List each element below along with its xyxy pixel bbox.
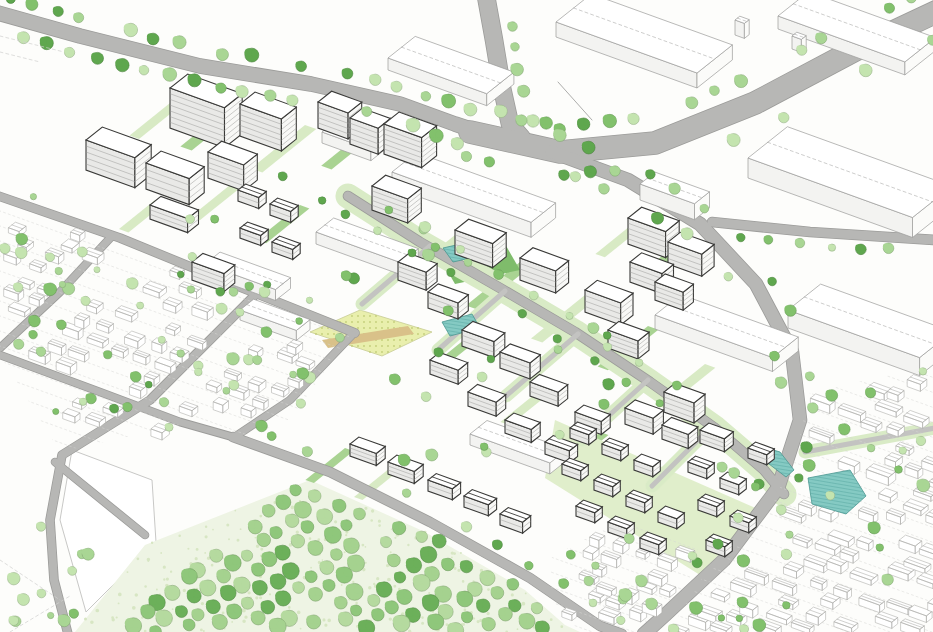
tree-icon [9,616,19,626]
tree-icon [0,244,10,254]
tree-icon [367,594,379,606]
tree-icon [56,320,66,330]
tree-icon [296,61,307,72]
tree-icon [323,579,335,591]
tree-icon [362,107,372,117]
tree-icon [155,610,172,626]
tree-icon [199,580,216,596]
tree-icon [709,86,719,96]
tree-icon [341,520,352,531]
tree-icon [220,585,236,600]
tree-icon [396,589,412,604]
tree-icon [865,388,875,398]
tree-icon [136,302,143,309]
tree-icon [334,596,347,609]
tree-icon [590,357,599,365]
tree-icon [290,371,297,378]
tree-icon [291,535,305,548]
tree-icon [308,490,321,503]
tree-icon [603,332,611,340]
tree-icon [796,45,806,55]
tree-icon [275,591,291,606]
tree-icon [81,296,90,305]
tree-icon [526,115,539,127]
tree-icon [226,604,242,619]
tree-icon [306,615,321,629]
tree-icon [398,454,410,466]
tree-icon [64,47,75,57]
tree-icon [427,614,444,630]
tree-icon [37,589,46,598]
tree-icon [140,605,155,619]
tree-icon [635,575,647,587]
tree-icon [507,578,519,590]
tree-icon [689,602,702,615]
tree-icon [461,151,472,161]
tree-icon [332,499,346,512]
tree-icon [610,166,621,176]
tree-icon [123,403,132,412]
tree-icon [451,138,464,150]
tree-icon [13,339,23,349]
tree-icon [270,527,283,539]
tree-icon [672,381,681,390]
tree-icon [223,387,230,394]
tree-icon [79,398,86,405]
tree-icon [15,247,27,258]
tree-icon [192,609,205,621]
tree-icon [393,615,410,632]
tree-icon [801,442,813,453]
tree-icon [77,247,87,257]
tree-icon [786,531,794,538]
tree-icon [895,466,903,474]
tree-icon [484,157,495,167]
tree-icon [216,288,225,297]
tree-icon [181,569,197,585]
tree-icon [47,612,53,618]
tree-icon [492,540,502,550]
tree-icon [855,244,866,255]
tree-icon [389,374,400,385]
tree-icon [316,509,332,525]
tree-icon [17,594,29,606]
tree-icon [173,36,187,49]
tree-icon [535,621,549,632]
tree-icon [296,399,306,408]
tree-icon [724,272,733,281]
tree-icon [635,359,643,367]
tree-icon [353,508,365,520]
tree-icon [216,83,227,93]
tree-icon [883,243,894,254]
tree-icon [828,244,835,251]
tree-icon [261,552,276,567]
tree-icon [235,86,248,98]
tree-icon [507,22,517,32]
tree-icon [346,583,364,600]
tree-icon [603,343,612,351]
tree-icon [529,291,538,300]
tree-icon [739,625,748,632]
tree-icon [224,555,241,572]
tree-icon [16,233,28,244]
tree-icon [306,297,313,303]
tree-icon [570,172,580,182]
tree-icon [603,379,615,390]
tree-icon [868,522,881,534]
tree-icon [803,460,815,472]
tree-icon [43,283,56,296]
tree-icon [229,380,239,390]
tree-icon [838,424,850,435]
tree-icon [498,607,512,621]
tree-icon [737,555,750,567]
tree-icon [555,430,564,439]
tree-icon [292,582,304,594]
tree-icon [775,377,787,388]
tree-icon [115,58,129,71]
tree-icon [212,614,228,629]
tree-icon [753,619,766,632]
tree-icon [531,603,543,614]
tree-icon [338,612,353,626]
tree-icon [645,170,655,179]
tree-icon [668,624,679,632]
tree-icon [717,462,727,472]
tree-icon [305,571,317,583]
tree-icon [540,117,553,129]
tree-icon [751,483,759,491]
tree-icon [558,170,569,180]
tree-icon [226,353,239,365]
tree-icon [259,287,270,298]
tree-icon [376,582,392,597]
tree-icon [524,562,533,570]
tree-icon [387,554,400,567]
tree-icon [566,312,573,319]
tree-icon [461,612,473,623]
tree-icon [688,552,697,560]
tree-icon [343,538,359,554]
tree-icon [159,398,168,407]
tree-icon [805,372,814,381]
tree-icon [394,572,406,583]
tree-icon [919,368,927,375]
tree-icon [30,194,36,200]
tree-icon [681,228,693,240]
tree-icon [296,318,303,325]
tree-icon [588,323,599,334]
tree-icon [94,267,100,273]
tree-icon [278,172,287,181]
tree-icon [669,183,681,194]
tree-icon [434,348,443,357]
tree-icon [287,95,298,106]
tree-icon [628,113,640,124]
tree-icon [103,351,111,359]
tree-icon [421,392,431,402]
tree-icon [700,204,709,213]
tree-icon [256,420,268,431]
tree-icon [308,587,322,601]
tree-icon [511,43,520,51]
masterplan-illustration [0,0,933,632]
tree-icon [175,606,187,618]
tree-icon [432,534,446,548]
tree-icon [162,68,176,82]
tree-icon [447,268,455,276]
tree-icon [188,253,197,261]
tree-icon [553,335,561,343]
tree-icon [795,474,803,482]
tree-icon [29,330,38,338]
tree-icon [479,571,495,586]
tree-icon [270,574,286,589]
tree-icon [177,350,185,357]
tree-icon [276,495,291,510]
tree-icon [341,271,351,281]
tree-icon [493,270,503,280]
tree-icon [882,574,894,585]
tree-icon [319,561,333,575]
tree-icon [416,531,428,542]
tree-icon [510,63,523,76]
tree-icon [261,600,275,614]
industrial-building [735,16,749,38]
tree-icon [91,52,103,64]
tree-icon [336,567,353,583]
tree-icon [477,372,487,382]
tree-icon [126,278,138,289]
tree-icon [441,558,454,571]
tree-icon [58,615,71,627]
tree-icon [807,403,818,413]
tree-icon [36,347,46,356]
tree-icon [45,253,54,262]
tree-icon [622,378,631,387]
tree-icon [341,210,350,219]
tree-icon [55,267,63,274]
tree-icon [776,505,786,515]
tree-icon [899,447,907,454]
tree-icon [216,303,227,314]
tree-icon [210,215,218,223]
tree-icon [764,235,773,244]
tree-icon [216,569,230,583]
tree-icon [261,327,272,338]
tree-icon [86,393,97,403]
tree-icon [429,129,443,143]
tree-icon [646,598,658,610]
tree-icon [584,576,594,585]
tree-icon [183,619,195,631]
tree-icon [422,249,434,261]
tree-icon [482,618,496,631]
tree-icon [68,567,77,576]
tree-icon [130,372,141,383]
tree-icon [815,33,826,44]
tree-icon [139,65,149,74]
tree-icon [592,562,600,569]
tree-icon [686,97,698,109]
tree-icon [734,75,747,88]
tree-icon [406,118,420,132]
tree-icon [876,544,884,551]
tree-icon [335,333,344,342]
tree-icon [476,599,490,612]
tree-icon [342,68,353,79]
tree-icon [385,601,399,614]
tree-icon [517,85,529,97]
tree-icon [369,74,381,85]
tree-icon [781,549,792,559]
tree-icon [425,449,437,461]
tree-icon [165,423,173,431]
tree-icon [624,534,634,544]
tree-icon [7,572,20,584]
tree-icon [285,514,299,527]
tree-icon [241,597,254,609]
tree-icon [244,48,258,62]
tree-icon [229,288,238,297]
tree-icon [443,306,453,316]
tree-icon [419,222,430,233]
tree-icon [186,215,195,224]
tree-icon [599,399,610,409]
tree-icon [391,81,402,92]
tree-icon [82,548,94,560]
tree-icon [245,282,254,290]
tree-icon [795,238,805,247]
tree-icon [713,539,723,549]
tree-icon [248,520,262,534]
tree-icon [778,112,789,122]
tree-icon [553,129,566,141]
tree-icon [301,521,314,534]
tree-icon [464,103,477,116]
tree-icon [187,286,195,293]
tree-icon [109,404,118,413]
tree-icon [736,233,745,241]
tree-icon [297,368,309,379]
tree-icon [518,310,527,318]
tree-icon [651,212,663,224]
tree-icon [269,618,286,632]
tree-icon [782,602,790,609]
tree-icon [371,609,384,621]
tree-icon [373,227,381,235]
tree-icon [252,580,267,595]
tree-icon [616,616,625,624]
tree-icon [402,489,411,497]
tree-icon [302,447,313,457]
tree-icon [589,599,597,607]
tree-icon [577,118,590,130]
tree-icon [566,550,575,559]
tree-icon [392,522,406,535]
tree-icon [554,346,562,354]
tree-icon [826,491,835,500]
tree-icon [884,3,894,13]
tree-icon [206,600,220,614]
tree-icon [187,589,201,603]
tree-icon [251,611,265,625]
tree-icon [867,444,875,451]
tree-icon [656,400,663,407]
tree-icon [350,605,361,616]
tree-icon [728,468,739,479]
tree-icon [515,115,527,126]
tree-icon [598,184,609,195]
tree-icon [236,308,244,316]
tree-icon [53,409,59,415]
tree-icon [194,368,202,375]
tree-icon [737,597,748,608]
tree-icon [124,23,138,36]
tree-icon [460,560,473,572]
tree-icon [36,522,45,531]
tree-icon [243,355,254,365]
tree-icon [769,351,779,361]
tree-icon [784,305,796,316]
tree-icon [125,618,142,632]
tree-icon [262,505,275,518]
tree-icon [330,549,342,561]
tree-icon [177,271,184,277]
tree-icon [491,587,504,600]
tree-icon [188,74,202,87]
tree-icon [584,166,596,178]
tree-icon [619,589,632,602]
masterplan-canvas [0,0,933,632]
tree-icon [324,527,341,544]
tree-icon [380,537,391,548]
tree-icon [464,259,472,267]
tree-icon [53,6,63,16]
tree-icon [768,277,777,285]
tree-icon [456,591,472,607]
tree-icon [406,558,422,573]
tree-icon [59,281,66,287]
tree-icon [385,206,393,214]
tree-icon [264,90,276,101]
tree-icon [733,513,743,523]
tree-icon [603,114,617,127]
tree-icon [727,134,740,147]
tree-icon [209,549,223,562]
tree-icon [421,92,431,101]
tree-icon [422,595,439,612]
tree-icon [826,390,838,402]
tree-icon [216,49,228,61]
tree-icon [147,33,159,45]
tree-icon [558,579,568,589]
tree-icon [408,249,416,257]
tree-icon [164,585,180,600]
tree-icon [461,522,472,532]
tree-icon [413,574,430,591]
tree-icon [241,550,253,561]
tree-icon [158,336,165,343]
tree-icon [736,615,743,621]
tree-icon [252,356,261,365]
tree-icon [145,381,152,388]
tree-icon [519,613,535,629]
tree-icon [480,443,488,450]
tree-icon [859,64,872,77]
tree-icon [308,541,323,556]
